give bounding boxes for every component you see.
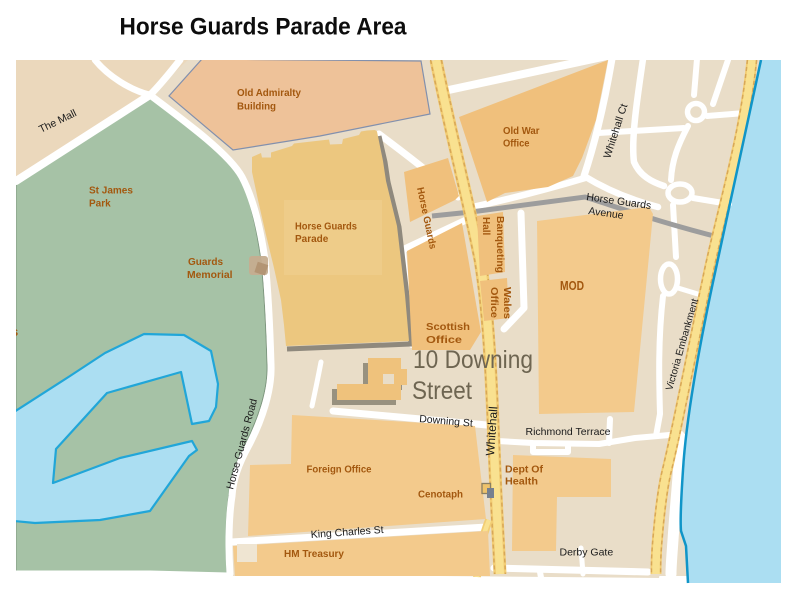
svg-text:Parade: Parade [295, 234, 329, 245]
svg-text:Old War: Old War [503, 126, 540, 137]
svg-text:Derby Gate: Derby Gate [560, 547, 614, 559]
svg-text:Building: Building [237, 102, 276, 113]
svg-text:Horse Guards Parade Area: Horse Guards Parade Area [120, 14, 408, 41]
svg-text:Cenotaph: Cenotaph [418, 490, 463, 501]
svg-text:MOD: MOD [560, 279, 584, 293]
svg-text:HM Treasury: HM Treasury [284, 549, 344, 560]
svg-text:Old Admiralty: Old Admiralty [237, 88, 301, 99]
svg-text:Office: Office [503, 139, 530, 150]
svg-text:Health: Health [505, 477, 538, 488]
svg-text:Office: Office [488, 287, 499, 318]
svg-text:Street: Street [412, 377, 472, 405]
svg-text:Park: Park [89, 199, 111, 210]
svg-text:10 Downing: 10 Downing [413, 346, 533, 374]
svg-text:Horse Guards: Horse Guards [295, 222, 357, 233]
svg-text:St James: St James [89, 186, 133, 197]
svg-text:Richmond Terrace: Richmond Terrace [526, 426, 611, 438]
svg-text:Guards: Guards [188, 257, 223, 268]
svg-text:Scottish: Scottish [426, 322, 470, 333]
svg-text:Memorial: Memorial [187, 270, 233, 281]
svg-text:Office: Office [426, 335, 463, 346]
svg-text:Dept Of: Dept Of [505, 465, 544, 476]
svg-text:Hall: Hall [480, 217, 491, 236]
svg-text:Foreign Office: Foreign Office [307, 465, 372, 476]
svg-text:Banqueting: Banqueting [494, 216, 505, 273]
svg-text:Wales: Wales [501, 287, 512, 319]
